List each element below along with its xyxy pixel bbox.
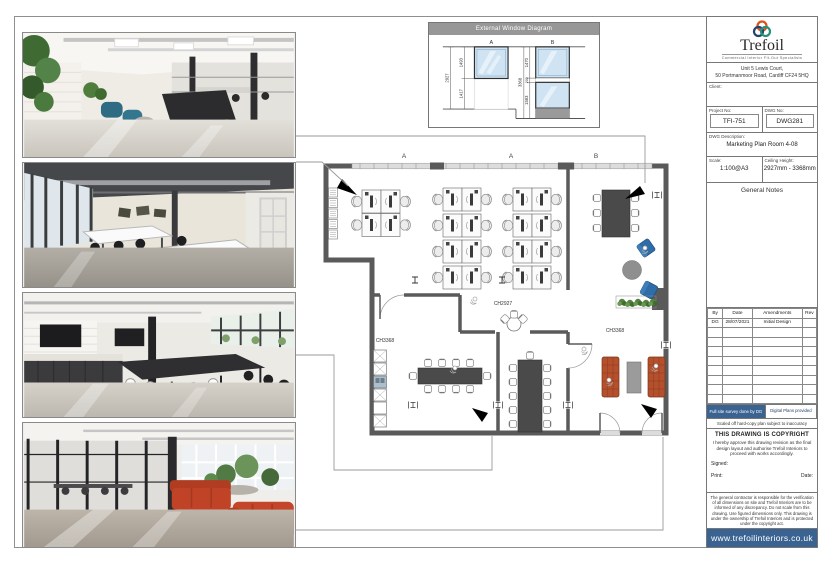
lounge-sofas <box>602 357 665 397</box>
amendments-row: DG28/07/2021Initial Design <box>708 318 817 328</box>
project-no-cell: Project No: TFI-751 <box>707 107 763 132</box>
svg-text:A: A <box>509 153 514 160</box>
project-numbers: Project No: TFI-751 DWG No: DWG281 <box>707 107 817 133</box>
wall-column-icon <box>564 402 573 409</box>
amendments-table: ByDateAmendmentsRev DG28/07/2021Initial … <box>707 308 817 405</box>
svg-text:B: B <box>594 153 598 160</box>
amendments-row <box>708 394 817 404</box>
scale-value: 1:100@A3 <box>707 163 762 172</box>
photo-open-office-art <box>23 163 295 287</box>
grid-markers: A A B <box>402 153 598 160</box>
dwg-description: DWG Description: Marketing Plan Room 4-0… <box>707 133 817 157</box>
wall-column-icon <box>409 402 418 409</box>
svg-text:A: A <box>402 153 407 160</box>
client-label: Client: <box>707 83 817 89</box>
photo-kitchen-breakout <box>22 292 296 418</box>
disclaimer-text: The general contractor is responsible fo… <box>707 493 817 529</box>
window-b-label: B <box>551 40 555 46</box>
dwg-no-value: DWG281 <box>766 114 815 128</box>
scale-cell: Scale: 1:100@A3 <box>707 157 763 182</box>
brand-name: Trefoil <box>740 38 784 53</box>
dwg-description-value: Marketing Plan Room 4-08 <box>707 139 817 148</box>
survey-tags: Full site survey done by DG Digital Plan… <box>707 405 817 419</box>
wall-column-icon <box>653 192 662 199</box>
scale-and-ceiling: Scale: 1:100@A3 Ceiling Height: 2927mm -… <box>707 157 817 183</box>
amendments-row <box>708 328 817 338</box>
svg-text:CH2927: CH2927 <box>494 301 513 307</box>
ceiling-value: 2927mm - 3368mm <box>763 163 818 172</box>
brand-tagline: Commercial Interior Fit-Out Specialists <box>722 54 803 60</box>
amendments-row <box>708 366 817 376</box>
external-window-diagram: External Window Diagram A B <box>428 22 600 128</box>
photo-kitchen-breakout-art <box>23 293 295 417</box>
digital-plans-tag: Digital Plans provided <box>765 405 817 418</box>
dwg-no-cell: DWG No: DWG281 <box>763 107 818 132</box>
wall-lockers <box>329 188 338 239</box>
wall-column-icon <box>662 342 671 349</box>
copyright-section: THIS DRAWING IS COPYRIGHT I hereby appro… <box>707 429 817 493</box>
window-diagram-title: External Window Diagram <box>429 23 599 35</box>
amendments-row <box>708 337 817 347</box>
title-block: Trefoil Commercial Interior Fit-Out Spec… <box>706 16 818 548</box>
company-logo: Trefoil Commercial Interior Fit-Out Spec… <box>707 17 817 63</box>
signed-label: Signed: <box>707 457 817 467</box>
amendments-row <box>708 385 817 395</box>
window-diagram-drawing: A B <box>429 35 599 127</box>
copyright-heading: THIS DRAWING IS COPYRIGHT <box>707 429 817 438</box>
date-label: Date: <box>801 473 813 479</box>
wall-column-icon <box>494 402 503 409</box>
window-a-label: A <box>489 40 493 46</box>
photo-open-office <box>22 162 296 288</box>
svg-text:1417: 1417 <box>459 89 464 99</box>
amendments-body: DG28/07/2021Initial Design <box>708 318 817 404</box>
svg-text:CH3368: CH3368 <box>376 338 395 344</box>
ceiling-cell: Ceiling Height: 2927mm - 3368mm <box>763 157 818 182</box>
svg-text:1493: 1493 <box>459 57 464 67</box>
survey-tag: Full site survey done by DG <box>707 405 765 418</box>
photo-breakout-lounge <box>22 32 296 158</box>
photo-breakout-lounge-art <box>23 33 295 157</box>
website-bar: www.trefoilinteriors.co.uk <box>707 529 817 547</box>
svg-text:200: 200 <box>525 77 529 83</box>
amendments-header-row: ByDateAmendmentsRev <box>708 309 817 319</box>
svg-text:1583: 1583 <box>524 95 529 105</box>
photo-red-sofa-lounge-art <box>23 423 295 547</box>
trefoil-knot-icon <box>749 20 775 38</box>
svg-text:1470: 1470 <box>524 57 529 67</box>
amendments-row <box>708 347 817 357</box>
general-notes-heading: General Notes <box>707 183 817 194</box>
amendments-row <box>708 356 817 366</box>
svg-text:CH3368: CH3368 <box>606 328 625 334</box>
project-no-value: TFI-751 <box>710 114 759 128</box>
svg-text:3368: 3368 <box>517 77 522 87</box>
company-address: Unit 5 Lewis Court, 50 Portmanmoor Road,… <box>707 63 817 83</box>
top-wall-windows <box>352 163 652 170</box>
svg-text:2927: 2927 <box>444 73 449 83</box>
client-field: Client: <box>707 83 817 107</box>
photo-red-sofa-lounge <box>22 422 296 548</box>
approval-text: I hereby approve this drawing revision a… <box>707 438 817 457</box>
amendments-row <box>708 375 817 385</box>
scaled-note: Scaled off hard-copy plan subject to ina… <box>707 419 817 429</box>
print-label: Print: <box>711 473 723 479</box>
floor-plan: A A B <box>312 148 684 448</box>
general-notes-area: General Notes <box>707 183 817 308</box>
drawing-sheet: External Window Diagram A B <box>0 0 832 588</box>
